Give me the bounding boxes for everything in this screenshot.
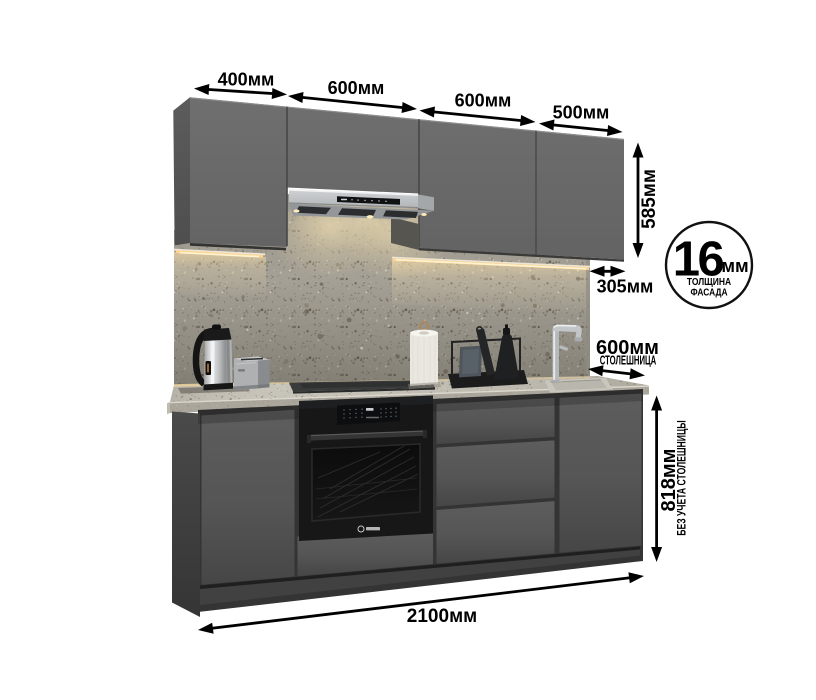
svg-text:ТОЛЩИНА: ТОЛЩИНА [687,276,731,287]
svg-text:600мм: 600мм [328,78,385,98]
svg-text:500мм: 500мм [553,103,610,123]
svg-text:СТОЛЕШНИЦА: СТОЛЕШНИЦА [600,355,657,368]
svg-text:400мм: 400мм [218,70,275,90]
svg-text:ФАСАДА: ФАСАДА [690,287,727,299]
svg-text:585мм: 585мм [639,169,660,229]
svg-text:305мм: 305мм [597,277,654,297]
svg-text:600мм: 600мм [455,91,512,111]
svg-text:БЕЗ УЧЕТА СТОЛЕШНИЦЫ: БЕЗ УЧЕТА СТОЛЕШНИЦЫ [676,420,688,535]
svg-text:2100мм: 2100мм [407,606,477,627]
svg-text:мм: мм [721,255,748,276]
